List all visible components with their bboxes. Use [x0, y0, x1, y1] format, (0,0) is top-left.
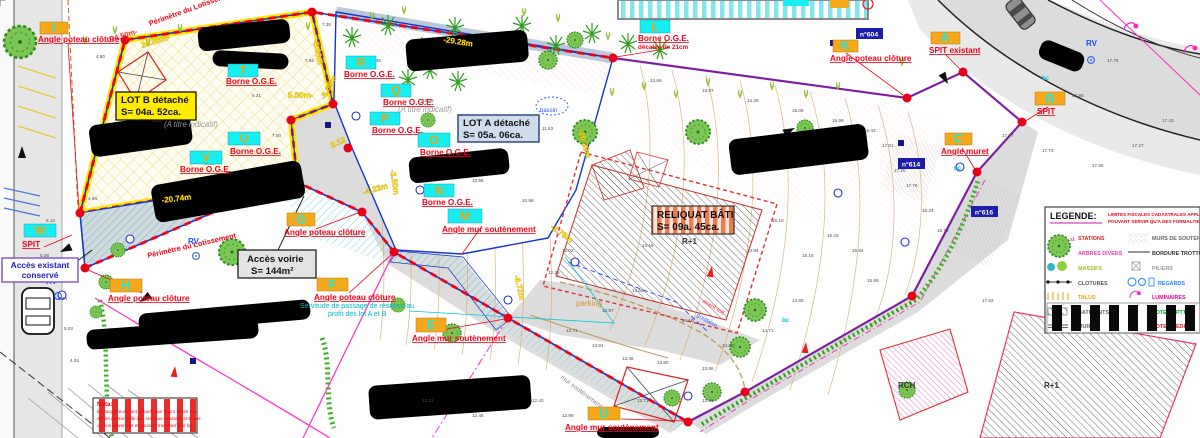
elevation-value: 14.85 [792, 298, 804, 303]
utility-circle-icon [901, 238, 909, 246]
elevation-value: 5.13 [46, 218, 55, 223]
marker-letter: R [357, 56, 366, 70]
utility-circle-icon [504, 296, 512, 304]
elevation-value: 14.28 [747, 98, 759, 103]
legend-panel: LEGENDE: LIMITES FISCALES CADASTRALES AP… [1045, 207, 1200, 333]
tree-icon [686, 120, 710, 144]
acces-voirie-label: Accès voirie S= 144m² [238, 250, 316, 278]
elevation-value: 12.97 [602, 308, 614, 313]
legend-item-label: BORDURE TROTTOIR [1152, 251, 1200, 257]
utility-circle-icon [352, 112, 360, 120]
elevation-value: 12.40 [532, 398, 544, 403]
boundary-dot [76, 209, 85, 218]
marker-letter: F [328, 278, 335, 292]
marker-letter: G [296, 213, 305, 227]
elevation-value: 13.48 [702, 398, 714, 403]
elevation-value: 17.62 [982, 298, 994, 303]
elevation-value: 14.38 [722, 343, 734, 348]
acces-existant-label: Accès existant conservé [2, 258, 78, 282]
parking-label: parking [576, 299, 602, 308]
elevation-value: 13.48 [622, 356, 634, 361]
rv-label: RV [1086, 39, 1098, 48]
boundary-dot [959, 68, 968, 77]
legend-soutenement-icon [1128, 233, 1148, 237]
marker-letter: D [600, 407, 609, 421]
elevation-value: 10.98 [472, 178, 484, 183]
parcel-ref-tag: n°614 [898, 158, 925, 169]
blue-square-icon [898, 140, 904, 146]
legend-disclaimer1: LIMITES FISCALES CADASTRALES APPLIQUEES … [1108, 212, 1200, 217]
acces-existant-line1: Accès existant [11, 260, 70, 270]
legend-massif-icon [1047, 263, 1055, 271]
marker-letter: T [239, 64, 247, 78]
marker-label: Angle mur soutènement [442, 225, 536, 234]
tree-icon [90, 306, 102, 318]
elevation-value: 15.84 [852, 248, 864, 253]
r1-label: R+1 [1044, 381, 1059, 390]
elevation-value: 4.94 [88, 196, 97, 201]
marker-label: Angle poteau clôture [108, 294, 190, 303]
marker-label: Borne O.G.E. [422, 198, 473, 207]
utility-circle-icon [834, 189, 842, 197]
cadastral-plan-page: 4.805.484.946.098.217.007.627.355.135.08… [0, 0, 1200, 438]
marker-letter: B [1046, 92, 1055, 106]
boundary-dot [741, 388, 750, 397]
marker-label: SPIT [1037, 107, 1055, 116]
elevation-value: 15.43 [827, 233, 839, 238]
legend-tree-icon [1048, 235, 1070, 257]
elevation-value: 15.10 [772, 218, 784, 223]
lot-a-area: S= 05a. 06ca. [463, 130, 523, 141]
marker-sublabel: décalée de 21cm [638, 44, 688, 51]
tree-icon [4, 26, 36, 58]
lot-b-label: LOT B détaché S= 04a. 52ca. [116, 92, 196, 120]
boundary-dot [81, 264, 90, 273]
elevation-value: 12.38 [548, 270, 560, 275]
reliquat-floor: R+1 [682, 237, 697, 246]
marker-label: Borne O.G.E. [180, 165, 231, 174]
legend-item-label: ARBRES DIVERS [1078, 251, 1123, 257]
marker-label: Angle poteau clôture [38, 35, 120, 44]
acces-voirie-title: Accès voirie [247, 254, 304, 265]
tree-icon [421, 113, 435, 127]
marker-label: Borne O.G.E. [344, 70, 395, 79]
marker-letter: H [122, 279, 131, 293]
marker-letter: W [34, 224, 46, 238]
marker-letter: L [651, 20, 658, 34]
marker-letter: M [460, 209, 470, 223]
tree-icon [539, 51, 557, 69]
boundary-dot [287, 116, 296, 125]
legend-massif-icon2 [1057, 261, 1067, 271]
elevation-value: 4.04 [70, 358, 79, 363]
nota-box: Nota: les acquéreurs tant actuels que fu… [93, 398, 201, 433]
elevation-value: 13.66 [650, 78, 662, 83]
blue-square-icon [190, 358, 196, 364]
reliquat-title: RELIQUAT BÂTI [657, 208, 734, 221]
elevation-value: 17.88 [1072, 93, 1084, 98]
marker-letter: Q [391, 84, 400, 98]
marker-letter: K [841, 39, 850, 53]
elevation-value: 15.18 [802, 253, 814, 258]
elevation-value: 14.71 [762, 328, 774, 333]
marker-label: Angle muret [941, 147, 989, 156]
elevation-value: 13.66 [632, 288, 644, 293]
marker-letter: V [202, 151, 210, 165]
lot-b-area: S= 04a. 52ca. [121, 107, 181, 118]
acces-voirie-area: S= 144m² [251, 266, 293, 277]
elevation-value: 17.01 [882, 143, 894, 148]
elevation-value: 17.73 [1042, 148, 1054, 153]
elevation-value: 15.99 [867, 278, 879, 283]
servitude-line2: profit des lot A et B [328, 311, 387, 318]
tree-icon [744, 299, 766, 321]
reliquat-area: S= 09a. 45ca. [657, 222, 720, 233]
elevation-value: 12.48 [472, 413, 484, 418]
elevation-value: 7.35 [322, 22, 331, 27]
elevation-value: 16.24 [922, 208, 934, 213]
legend-item-label: STATIONS [1078, 236, 1105, 242]
utility-circle-icon [684, 392, 692, 400]
marker-label: Angle mur soutènement [565, 423, 659, 432]
elevation-value: 4.80 [96, 54, 105, 59]
elevation-value: 12.71 [566, 328, 578, 333]
elevation-value: 8.21 [252, 93, 261, 98]
boundary-dot [908, 292, 917, 301]
legend-soutenement-icon2 [1128, 239, 1148, 243]
elevation-value: 17.76 [1107, 58, 1119, 63]
elevation-value: 17.85 [1092, 163, 1104, 168]
legend-item-label: TALUS [1078, 295, 1096, 301]
marker-label: Borne O.G.E. [230, 147, 281, 156]
bassin-label: bassin [540, 108, 557, 114]
striped-roof-building [618, 0, 873, 19]
acces-existant-line2: conservé [22, 270, 59, 280]
indicative-note-a: (A titre indicatif) [398, 105, 452, 114]
lot-b-title: LOT B détaché [121, 95, 189, 106]
elevation-value: 12.21 [422, 398, 434, 403]
bc-label: bc [1042, 76, 1050, 82]
legend-item-label: REGARDS [1158, 281, 1185, 287]
elevation-value: 13.87 [702, 88, 714, 93]
marker-letter: P [381, 112, 389, 126]
blue-square-icon [325, 122, 331, 128]
elevation-value: 7.62 [305, 58, 314, 63]
boundary-dot [344, 144, 353, 153]
elevation-value: 17.27 [1132, 143, 1144, 148]
ref-tag-text: n°614 [902, 161, 920, 169]
elevation-value: 13.86 [702, 366, 714, 371]
marker-letter: I [52, 21, 55, 35]
marker-label: Borne O.G.E. [420, 148, 471, 157]
elevation-value: 14.16 [682, 318, 694, 323]
elevation-value: 17.79 [906, 183, 918, 188]
elevation-value: 13.91 [592, 343, 604, 348]
scale-bar [1047, 303, 1200, 333]
elevation-value: 10.96 [522, 198, 534, 203]
marker-label: Angle mur soutènement [412, 334, 506, 343]
boundary-dot [609, 54, 618, 63]
marker-letter: N [435, 184, 444, 198]
elevation-value: 12.02 [562, 248, 574, 253]
ref-tag-text: n°616 [975, 209, 993, 217]
legend-item-label: MURS DE SOUTENEMENT [1152, 236, 1200, 242]
elevation-value: 17.43 [1162, 118, 1174, 123]
tree-icon [664, 390, 680, 406]
boundary-dot [329, 100, 338, 109]
ref-tag-text: n°604 [860, 31, 878, 39]
elevation-value: 12.98 [562, 413, 574, 418]
marker-letter: A [941, 31, 950, 45]
elevation-value: 13.60 [657, 360, 669, 365]
boundary-dot [504, 314, 513, 323]
elevation-value: 15.98 [832, 118, 844, 123]
utility-circle-icon [416, 186, 424, 194]
elevation-value: 7.00 [272, 133, 281, 138]
boundary-dot [1018, 118, 1027, 127]
elevation-value: 16.43 [864, 128, 876, 133]
marker-label: Borne O.G.E. [372, 126, 423, 135]
marker-label: SPIT [22, 240, 40, 249]
lot-a-title: LOT A détaché [463, 118, 530, 129]
utility-circle-icon [126, 235, 134, 243]
parcel-ref-tag: n°616 [971, 206, 998, 217]
legend-item-label: LUMINAIRES [1152, 295, 1186, 301]
legend-item-label: PILIERS [1152, 266, 1173, 272]
marker-label: Angle poteau clôture [284, 228, 366, 237]
tree-icon [567, 32, 583, 48]
marker-label: Borne O.G.E. [638, 34, 689, 43]
utility-circle-icon [571, 258, 579, 266]
elevation-value: 5.04 [58, 296, 67, 301]
boundary-dot [308, 8, 317, 17]
elevation-value: 5.03 [64, 326, 73, 331]
boundary-dot [390, 248, 399, 257]
marker-label: Angle poteau clôture [830, 54, 912, 63]
indicative-note-b: (A titre indicatif) [164, 120, 218, 129]
tree-icon [111, 243, 125, 257]
elevation-value: 15.06 [792, 108, 804, 113]
marker-label: SPIT existant [929, 46, 981, 55]
servitude-line1: Servitude de passage de réseaux au [300, 303, 414, 310]
boundary-dot [358, 208, 367, 217]
elevation-value: 12.71 [637, 398, 649, 403]
legend-item-label: CLOTURES [1078, 281, 1108, 287]
marker-label: Angle poteau clôture [314, 293, 396, 302]
marker-letter: U [240, 132, 249, 146]
boundary-dot [903, 94, 912, 103]
elevation-value: 15.73 [937, 228, 949, 233]
bc-label: bc [954, 166, 962, 172]
legend-disclaimer2: POUVANT SERVIR QU'A DES FORMALITES ADMIN… [1108, 219, 1200, 224]
boundary-dot [973, 168, 982, 177]
legend-item-label: MASSIFS [1078, 266, 1102, 272]
elevation-value: 14.19 [642, 243, 654, 248]
legend-title: LEGENDE: [1050, 211, 1097, 221]
rch-label: RCH [898, 381, 916, 390]
marker-label: Borne O.G.E. [226, 77, 277, 86]
marker-letter: E [427, 318, 435, 332]
elevation-value: 11.63 [542, 126, 554, 131]
parked-car [22, 288, 54, 334]
lot-a-label: LOT A détaché S= 05a. 06ca. [458, 115, 539, 142]
elevation-value: 17.77 [1002, 133, 1014, 138]
marker-letter: O [429, 133, 438, 147]
bc-label: bc [782, 318, 790, 324]
marker-letter: C [954, 132, 963, 146]
boundary-dot [684, 418, 693, 427]
site-plan-canvas: 4.805.484.946.098.217.007.627.355.135.08… [0, 0, 1200, 438]
dimension-text: 5.00m- [288, 91, 314, 100]
parcel-ref-tag: n°604 [856, 28, 883, 39]
elevation-value: 14.84 [747, 248, 759, 253]
legend-sl-mark: sl. [1070, 237, 1076, 243]
